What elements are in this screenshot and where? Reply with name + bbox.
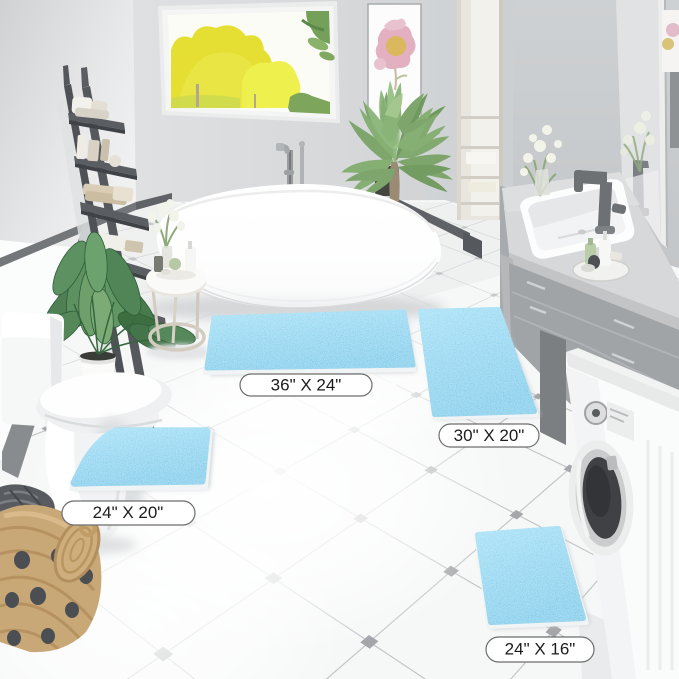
svg-text:36" X 24": 36" X 24" (271, 376, 342, 395)
svg-text:24" X 16": 24" X 16" (505, 640, 576, 659)
svg-text:24" X 20": 24" X 20" (93, 503, 164, 522)
svg-text:30" X 20": 30" X 20" (454, 426, 525, 445)
